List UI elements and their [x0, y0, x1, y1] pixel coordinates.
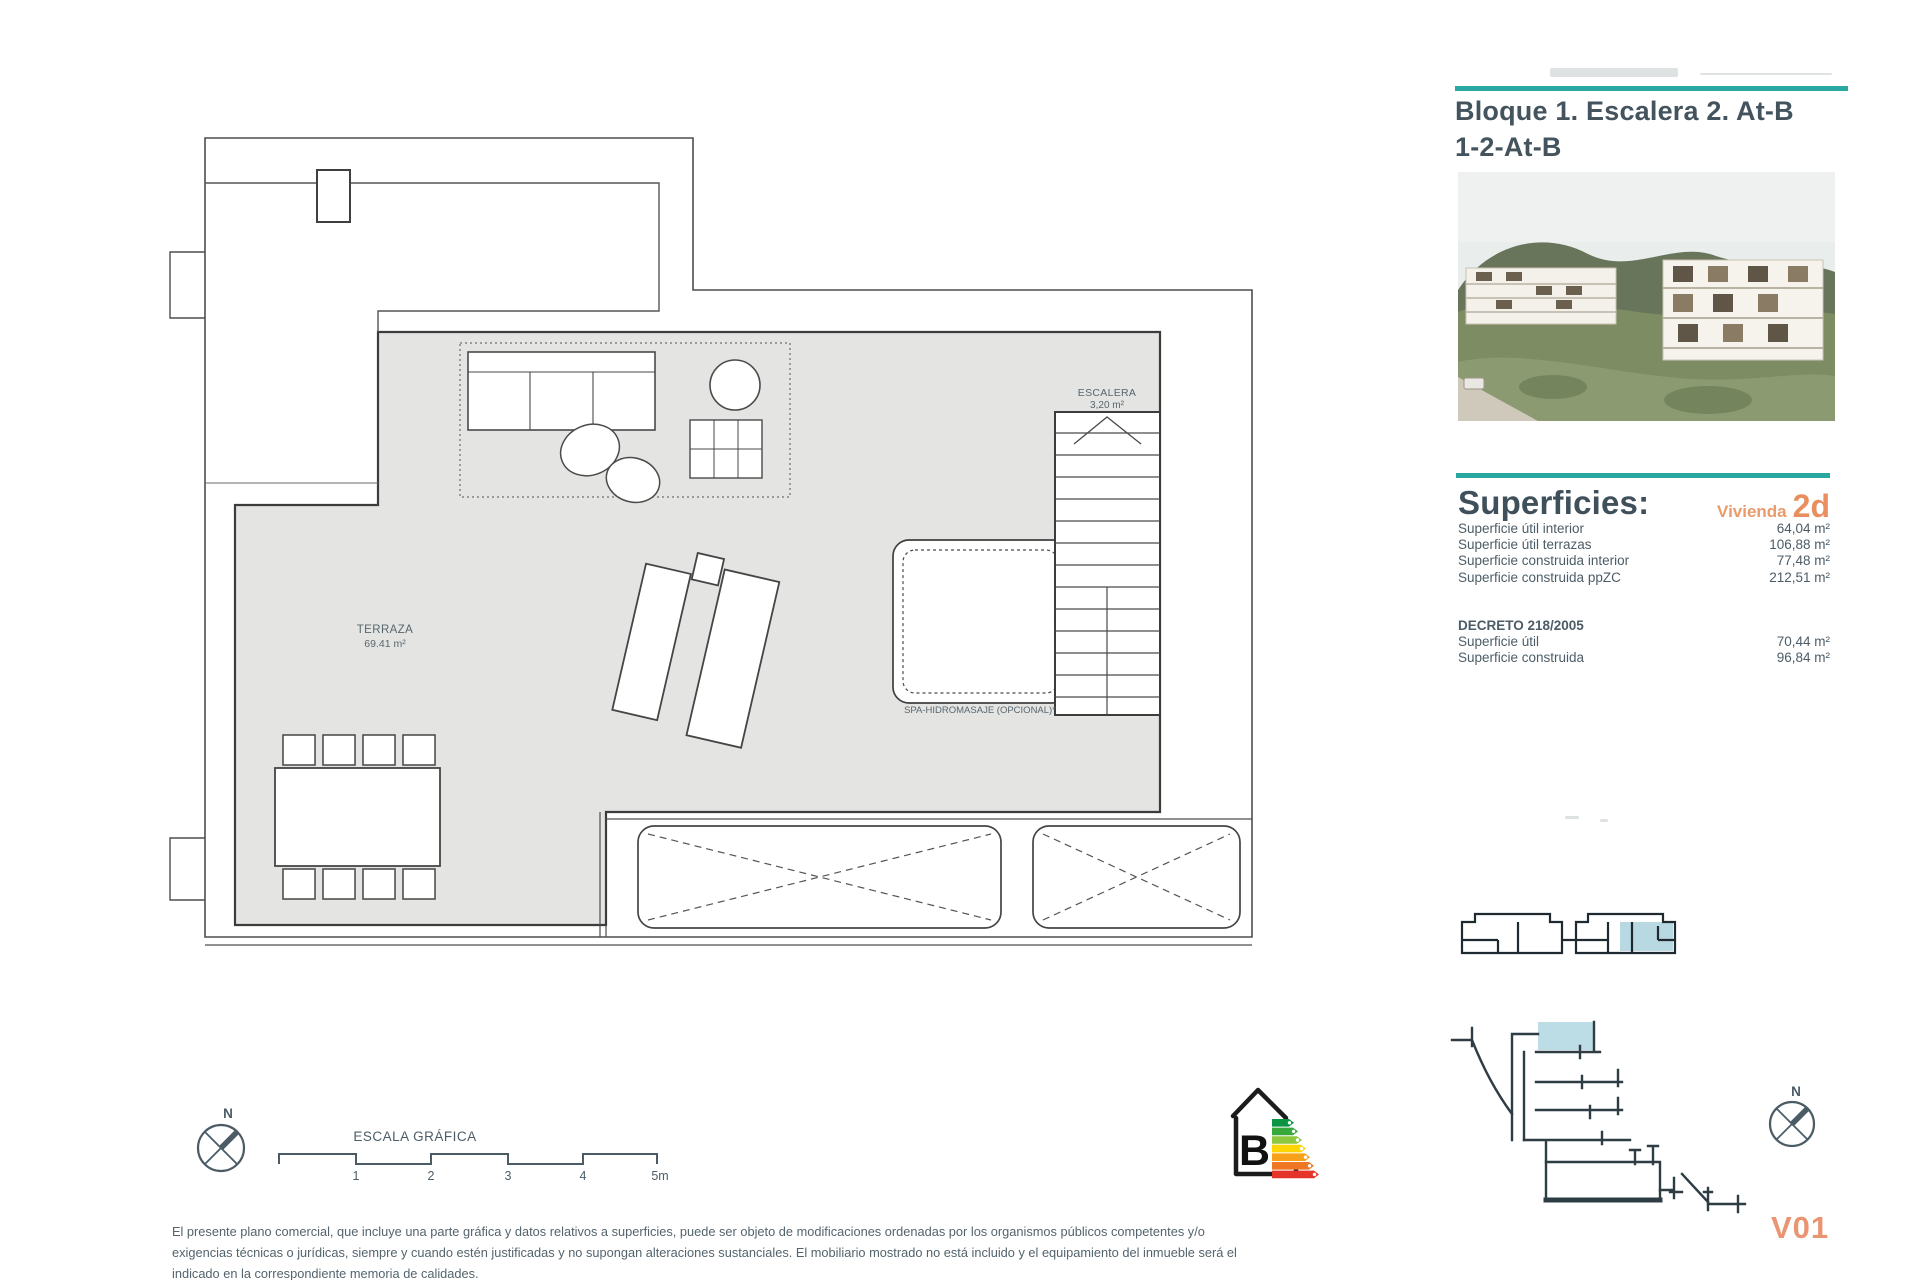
superficies-row: Superficie construida interior 77,48 m² — [1458, 553, 1830, 569]
row-value: 212,51 m² — [1769, 570, 1830, 586]
north-letter: N — [223, 1106, 233, 1121]
grid-table — [690, 420, 762, 478]
unit-title-line2: 1-2-At-B — [1455, 129, 1855, 165]
row-value: 96,84 m² — [1777, 650, 1830, 666]
redacted-logo-line — [1700, 73, 1832, 75]
row-value: 77,48 m² — [1777, 553, 1830, 569]
superficies-row: Superficie útil interior 64,04 m² — [1458, 521, 1830, 537]
decreto-row: Superficie construida 96,84 m² — [1458, 650, 1830, 666]
building-render-art — [1458, 172, 1835, 421]
stray-mark — [1565, 816, 1579, 819]
vivienda-label: Vivienda — [1717, 502, 1787, 521]
energy-letter: B — [1239, 1127, 1270, 1175]
chimney-box — [317, 170, 350, 222]
row-label: Superficie construida — [1458, 650, 1584, 666]
decreto-row: Superficie útil 70,44 m² — [1458, 634, 1830, 650]
vivienda-code: 2d — [1793, 488, 1830, 524]
title-block: Bloque 1. Escalera 2. At-B 1-2-At-B — [1455, 93, 1855, 165]
row-label: Superficie útil interior — [1458, 521, 1584, 537]
redacted-logo-text — [1550, 68, 1678, 77]
scale-tick: 1 — [353, 1169, 360, 1183]
building-render-photo — [1458, 172, 1835, 421]
scale-tick: 3 — [505, 1169, 512, 1183]
version-code: V01 — [1771, 1210, 1829, 1246]
north-arrow-icon: N — [192, 1104, 252, 1174]
escalera-area-label: 3,20 m² — [1090, 400, 1125, 411]
roof-line — [205, 183, 659, 332]
energy-rating-icon: B — [1226, 1086, 1336, 1190]
stray-mark — [1600, 819, 1608, 822]
key-plan-highlight — [1620, 922, 1673, 951]
section-highlight — [1538, 1022, 1594, 1050]
terraza-label: TERRAZA — [357, 624, 413, 636]
boundary-notches — [170, 252, 205, 900]
superficies-accent-rule — [1456, 473, 1830, 478]
superficies-rows: Superficie útil interior 64,04 m² Superf… — [1458, 521, 1830, 586]
decreto-block: DECRETO 218/2005 Superficie útil 70,44 m… — [1458, 617, 1830, 666]
scale-title: ESCALA GRÁFICA — [353, 1129, 476, 1144]
decreto-heading: DECRETO 218/2005 — [1458, 617, 1830, 634]
north-letter: N — [1791, 1084, 1801, 1099]
row-label: Superficie construida interior — [1458, 553, 1629, 569]
escalera-label: ESCALERA — [1078, 387, 1136, 399]
key-plan — [1458, 910, 1693, 966]
row-value: 64,04 m² — [1777, 521, 1830, 537]
vivienda-tag: Vivienda2d — [1598, 488, 1830, 525]
section-sketch — [1450, 1012, 1750, 1237]
row-label: Superficie construida ppZC — [1458, 570, 1621, 586]
plan-sheet: TERRAZA 69.41 m² ESCALERA 3,20 m² SPA-HI… — [0, 0, 1920, 1280]
north-arrow-icon: N — [1763, 1082, 1823, 1152]
staircase — [1055, 412, 1160, 715]
row-label: Superficie útil — [1458, 634, 1539, 650]
title-accent-rule — [1455, 86, 1848, 91]
row-label: Superficie útil terrazas — [1458, 537, 1592, 553]
superficies-row: Superficie útil terrazas 106,88 m² — [1458, 537, 1830, 553]
spa-hidromasaje — [893, 540, 1068, 703]
terraza-area-label: 69.41 m² — [364, 638, 406, 650]
round-table — [710, 360, 760, 410]
scale-tick: 2 — [428, 1169, 435, 1183]
row-value: 106,88 m² — [1769, 537, 1830, 553]
scale-tick: 5m — [651, 1169, 668, 1183]
scale-tick: 4 — [580, 1169, 587, 1183]
energy-bars — [1272, 1119, 1319, 1178]
superficies-row: Superficie construida ppZC 212,51 m² — [1458, 570, 1830, 586]
planter-boxes — [638, 826, 1240, 928]
legal-disclaimer: El presente plano comercial, que incluye… — [172, 1221, 1242, 1280]
unit-title-line1: Bloque 1. Escalera 2. At-B — [1455, 93, 1855, 129]
sofa — [468, 352, 655, 430]
graphic-scale: ESCALA GRÁFICA 1 2 3 4 5m — [270, 1125, 680, 1187]
row-value: 70,44 m² — [1777, 634, 1830, 650]
spa-label: SPA-HIDROMASAJE (OPCIONAL)* — [904, 705, 1056, 716]
floor-plan-drawing: TERRAZA 69.41 m² ESCALERA 3,20 m² SPA-HI… — [150, 70, 1300, 990]
